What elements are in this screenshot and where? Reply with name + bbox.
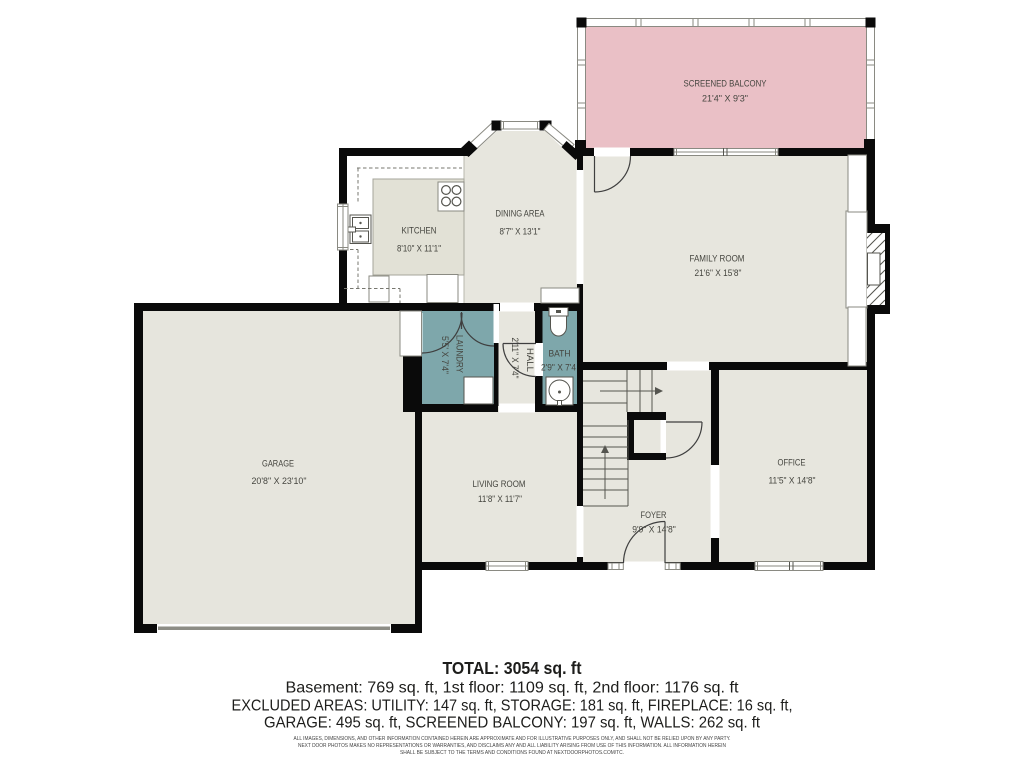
svg-text:DINING AREA: DINING AREA xyxy=(496,209,545,219)
svg-text:21'6" X 15'8": 21'6" X 15'8" xyxy=(695,268,742,278)
svg-text:KITCHEN: KITCHEN xyxy=(402,226,437,236)
svg-text:GARAGE: 495 sq. ft, SCREENED B: GARAGE: 495 sq. ft, SCREENED BALCONY: 19… xyxy=(264,715,761,732)
svg-text:SHALL BE SUBJECT TO THE TERMS: SHALL BE SUBJECT TO THE TERMS AND CONDIT… xyxy=(400,750,624,756)
svg-text:FOYER: FOYER xyxy=(641,510,667,520)
svg-text:2'11" X 7'4": 2'11" X 7'4" xyxy=(510,338,520,379)
svg-text:Basement: 769 sq. ft, 1st floo: Basement: 769 sq. ft, 1st floor: 1109 sq… xyxy=(286,680,740,697)
svg-text:SCREENED BALCONY: SCREENED BALCONY xyxy=(684,79,767,89)
svg-text:8'7" X 13'1": 8'7" X 13'1" xyxy=(500,227,541,237)
svg-text:FAMILY ROOM: FAMILY ROOM xyxy=(690,254,745,264)
svg-text:2'9" X 7'4: 2'9" X 7'4 xyxy=(541,363,576,373)
svg-text:20'8" X 23'10": 20'8" X 23'10" xyxy=(252,476,307,486)
svg-text:TOTAL: 3054 sq. ft: TOTAL: 3054 sq. ft xyxy=(443,658,582,678)
svg-text:BATH: BATH xyxy=(549,349,571,359)
svg-text:5'5' X 7'4": 5'5' X 7'4" xyxy=(440,336,450,374)
svg-text:OFFICE: OFFICE xyxy=(778,458,806,468)
svg-text:8'10" X 11'1": 8'10" X 11'1" xyxy=(397,244,441,254)
svg-text:ALL IMAGES, DIMENSIONS, AND OT: ALL IMAGES, DIMENSIONS, AND OTHER INFORM… xyxy=(294,736,731,742)
svg-text:HALL: HALL xyxy=(525,348,535,372)
svg-text:EXCLUDED AREAS: UTILITY: 147 s: EXCLUDED AREAS: UTILITY: 147 sq. ft, STO… xyxy=(232,698,793,715)
svg-text:11'8" X 11'7": 11'8" X 11'7" xyxy=(478,494,522,504)
svg-text:NEXT DOOR PHOTOS MAKES NO REPR: NEXT DOOR PHOTOS MAKES NO REPRESENTATION… xyxy=(298,743,726,749)
svg-text:21'4" X 9'3": 21'4" X 9'3" xyxy=(702,94,748,104)
svg-text:GARAGE: GARAGE xyxy=(262,459,294,469)
svg-text:LAUNDRY: LAUNDRY xyxy=(455,335,465,373)
svg-text:11'5" X 14'8": 11'5" X 14'8" xyxy=(769,476,816,486)
svg-text:9'9" X 14'8": 9'9" X 14'8" xyxy=(632,525,676,535)
svg-text:LIVING ROOM: LIVING ROOM xyxy=(473,479,526,489)
